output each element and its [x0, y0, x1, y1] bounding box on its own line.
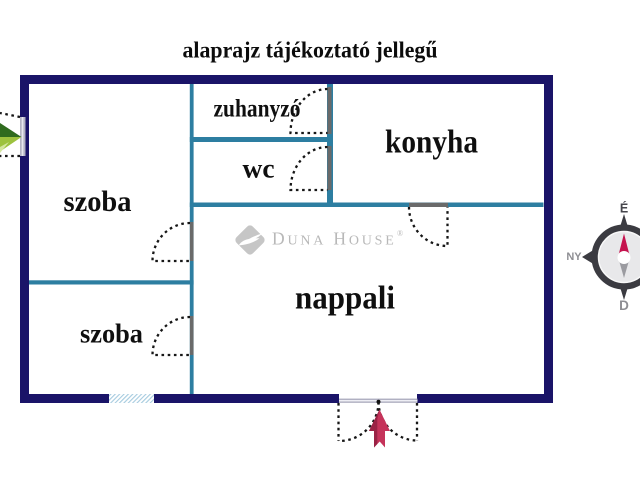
svg-text:szoba: szoba — [64, 185, 132, 218]
svg-text:alaprajz tájékoztató jellegű: alaprajz tájékoztató jellegű — [183, 38, 438, 63]
svg-text:D: D — [619, 298, 629, 313]
svg-text:nappali: nappali — [295, 281, 395, 317]
svg-text:wc: wc — [243, 154, 275, 184]
svg-text:É: É — [620, 201, 628, 216]
svg-text:NY: NY — [566, 251, 582, 263]
svg-text:zuhanyzó: zuhanyzó — [214, 96, 301, 123]
svg-text:konyha: konyha — [385, 125, 478, 161]
svg-text:szoba: szoba — [80, 319, 143, 349]
svg-text:®: ® — [397, 229, 403, 238]
